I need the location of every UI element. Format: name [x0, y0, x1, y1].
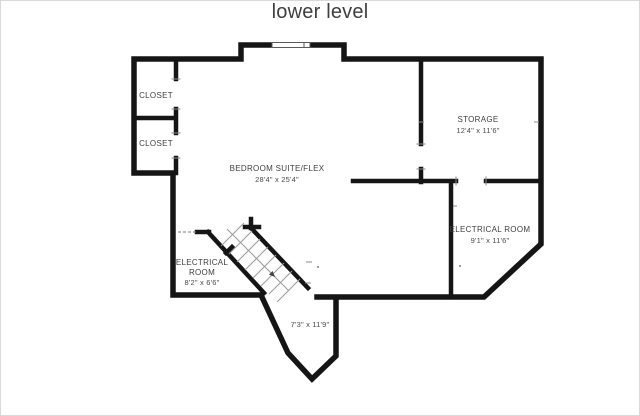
room-dims-stairwell: 7'3" x 11'9"	[291, 320, 330, 329]
room-dims-electrical-right: 9'1" x 11'6"	[471, 236, 510, 245]
room-dims-bedroom: 28'4" x 25'4"	[255, 175, 299, 184]
room-label-bedroom: BEDROOM SUITE/FLEX	[230, 164, 325, 173]
room-dims-electrical-left: 8'2" x 6'6"	[185, 278, 220, 287]
exterior-wall-outline	[134, 45, 541, 379]
room-dims-storage: 12'4" x 11'6"	[456, 126, 499, 135]
window	[272, 42, 310, 49]
room-label-electrical-left-line2: ROOM	[189, 268, 215, 277]
room-label-storage: STORAGE	[457, 115, 498, 124]
room-label-electrical-right: ELECTRICAL ROOM	[450, 225, 531, 234]
door-openings	[172, 79, 487, 232]
room-label-closet-2: CLOSET	[139, 139, 173, 148]
room-label-electrical-left-line1: ELECTRICAL	[176, 258, 229, 267]
floorplan-drawing: CLOSET CLOSET BEDROOM SUITE/FLEX 28'4" x…	[1, 1, 640, 416]
room-label-closet-1: CLOSET	[139, 91, 173, 100]
floorplan-page: lower level	[0, 0, 640, 416]
